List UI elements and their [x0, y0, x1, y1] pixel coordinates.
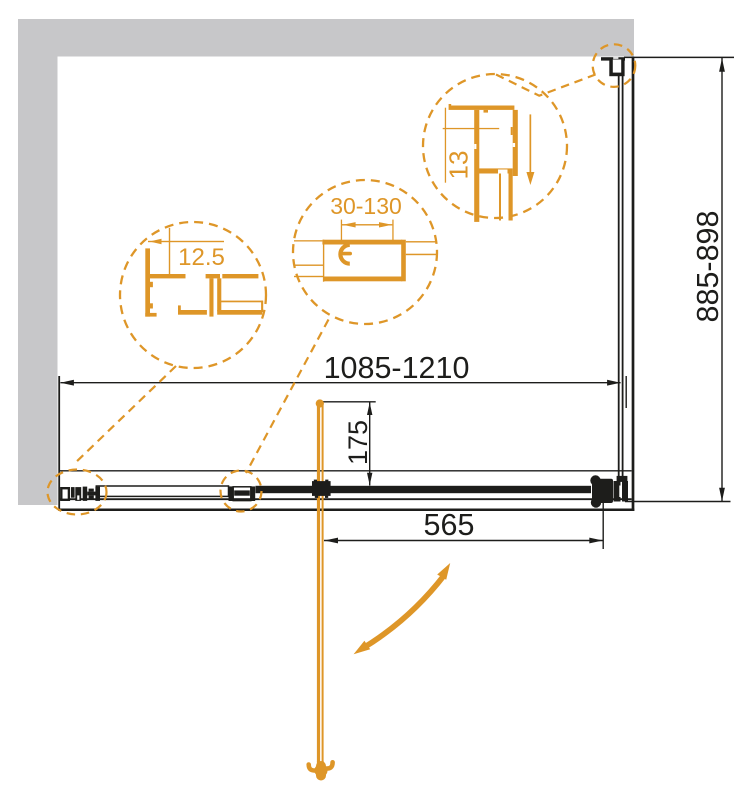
svg-text:30-130: 30-130 — [330, 193, 402, 219]
svg-text:13: 13 — [444, 151, 474, 180]
svg-text:12.5: 12.5 — [178, 244, 225, 271]
svg-text:1085-1210: 1085-1210 — [324, 351, 470, 385]
svg-text:565: 565 — [424, 508, 475, 542]
svg-text:175: 175 — [343, 420, 373, 465]
svg-text:885-898: 885-898 — [691, 211, 725, 323]
